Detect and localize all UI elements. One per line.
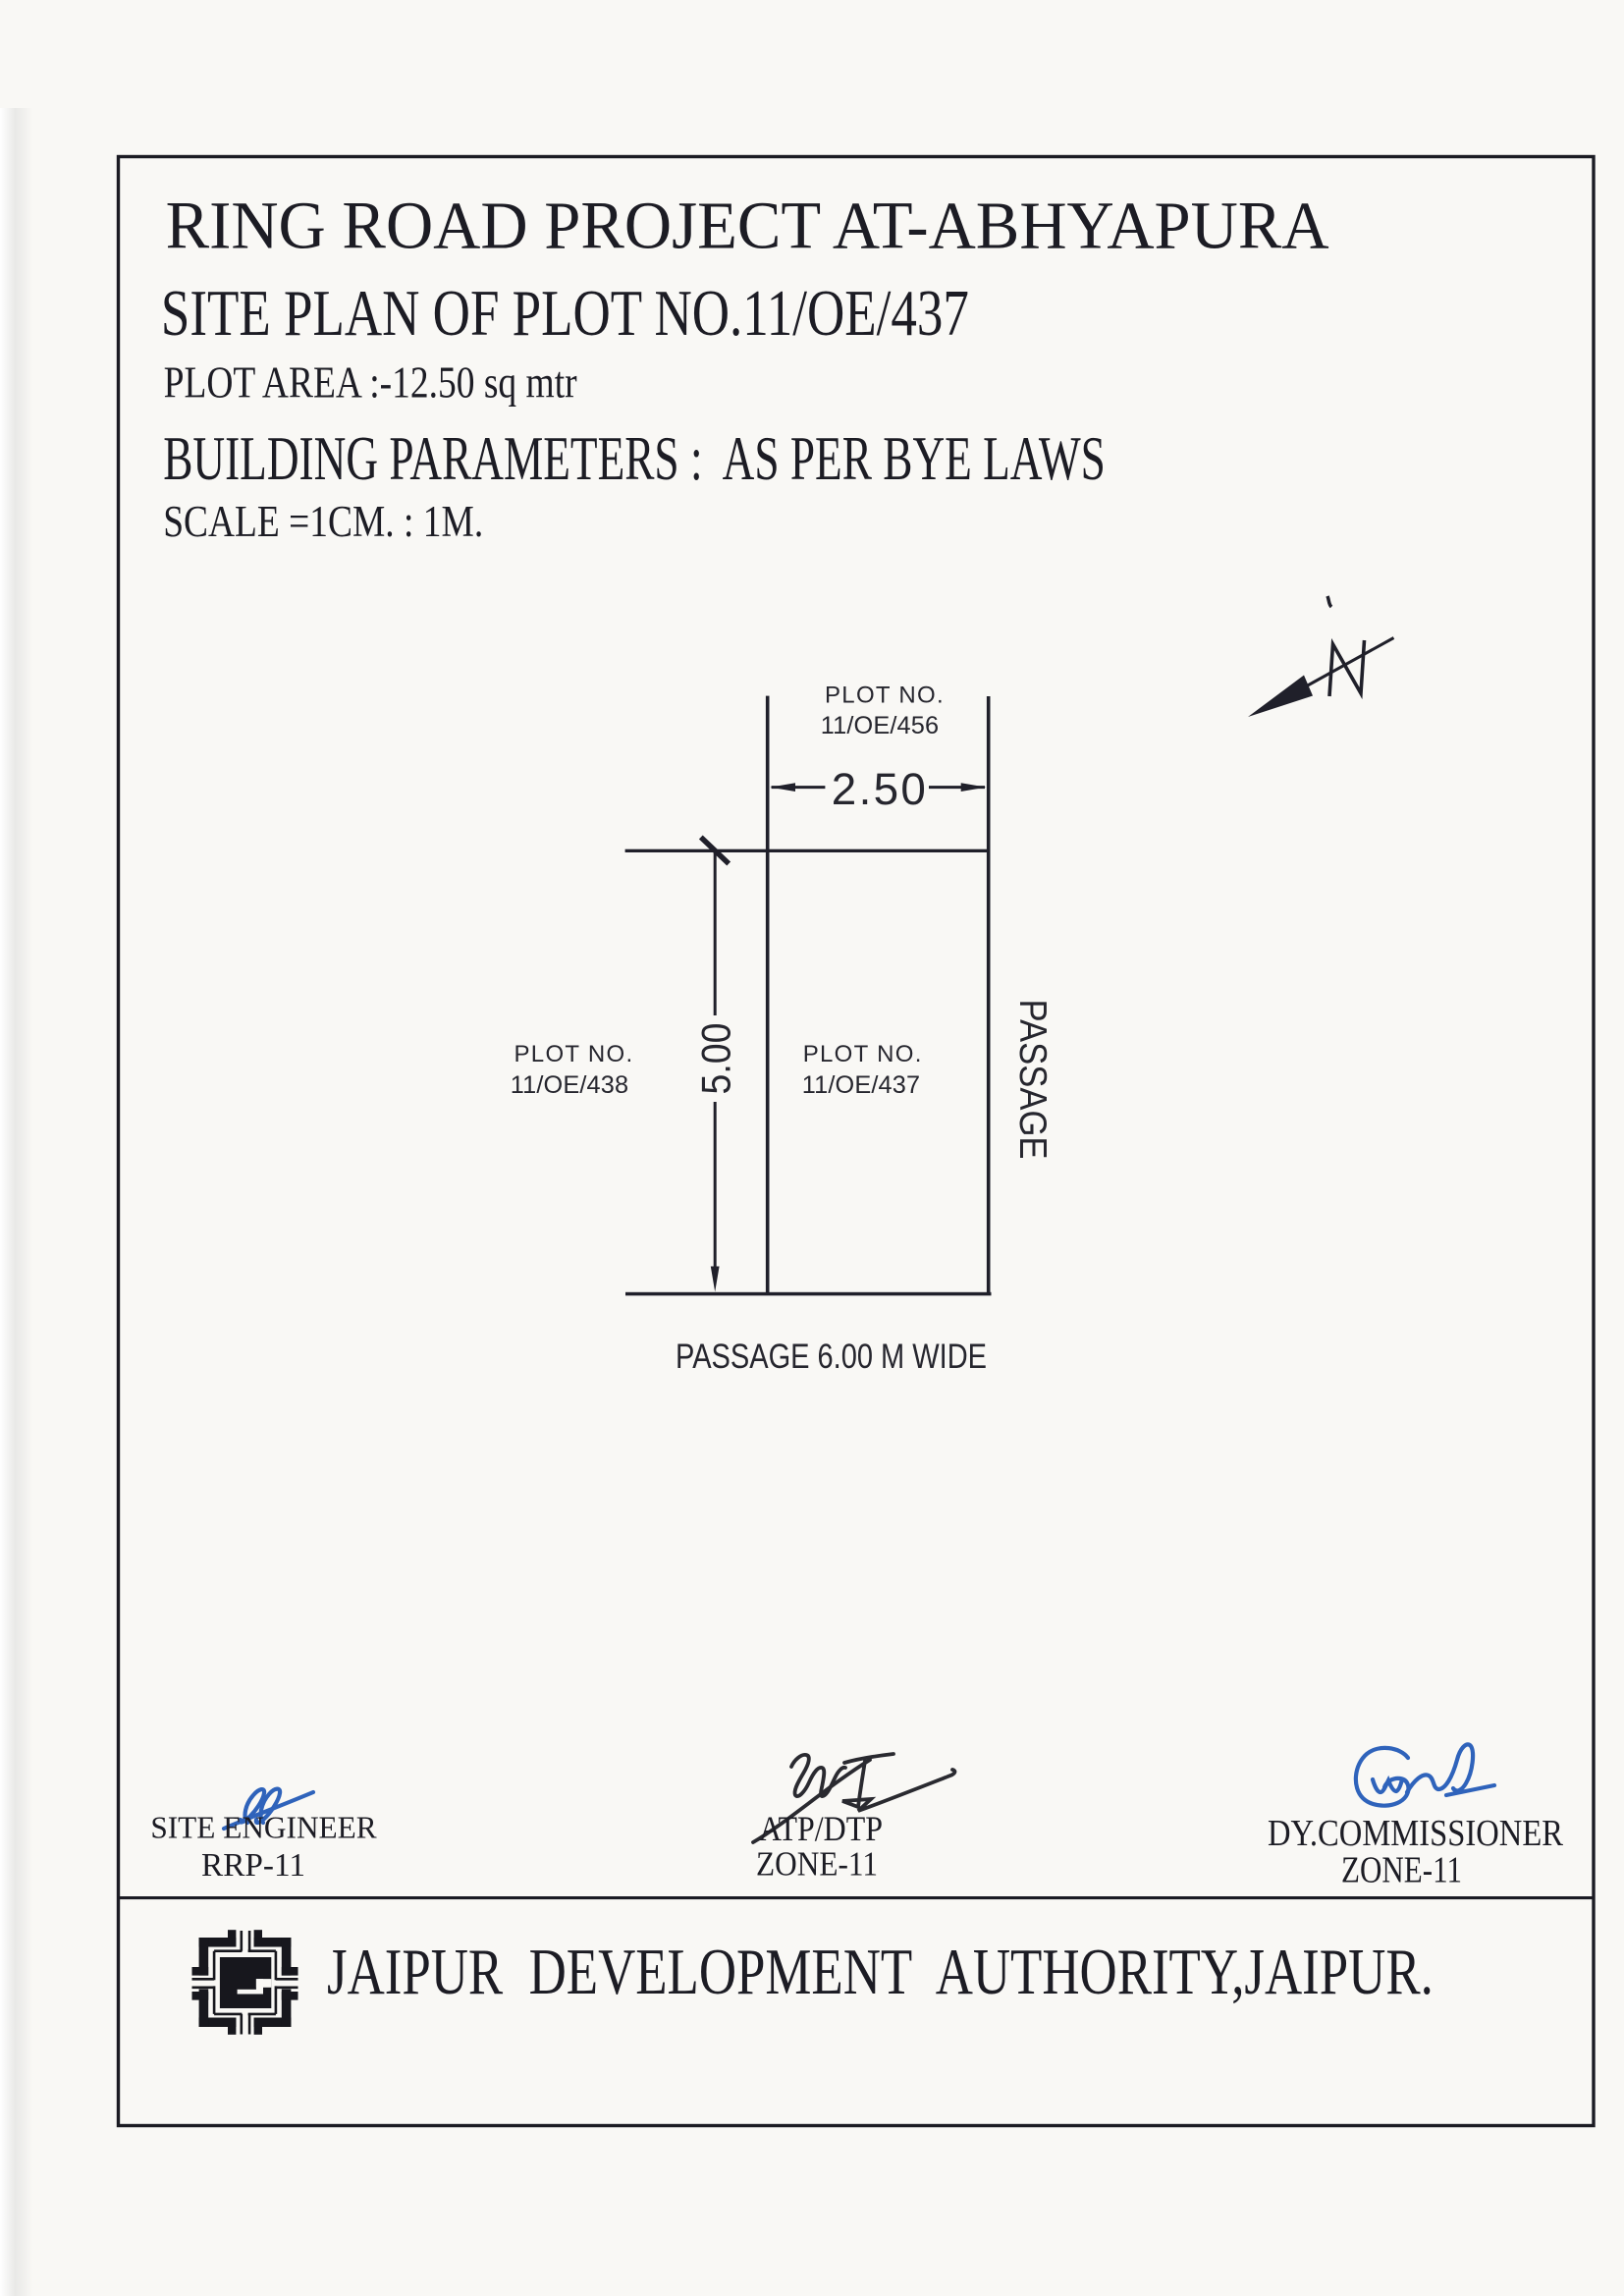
svg-text:ATP/DTP: ATP/DTP [759, 1809, 883, 1848]
svg-text:PASSAGE 6.00 M WIDE: PASSAGE 6.00 M WIDE [676, 1338, 987, 1376]
svg-text:BUILDING PARAMETERS : AS PER: BUILDING PARAMETERS : AS PER BYE LAWS [163, 424, 1106, 493]
svg-text:11/OE/438: 11/OE/438 [511, 1071, 628, 1099]
svg-text:11/OE/437: 11/OE/437 [802, 1071, 920, 1099]
svg-text:PASSAGE: PASSAGE [1011, 1000, 1054, 1160]
svg-text:5.00: 5.00 [692, 1023, 738, 1095]
svg-text:PLOT NO.: PLOT NO. [803, 1041, 923, 1067]
svg-text:RING ROAD PROJECT AT-ABHYAPURA: RING ROAD PROJECT AT-ABHYAPURA [166, 189, 1329, 263]
svg-text:SITE ENGINEER: SITE ENGINEER [150, 1811, 376, 1845]
svg-text:PLOT AREA :-12.50 sq mtr: PLOT AREA :-12.50 sq mtr [164, 357, 577, 408]
svg-text:ZONE-11: ZONE-11 [1341, 1850, 1462, 1891]
svg-text:SCALE =1CM. : 1M.: SCALE =1CM. : 1M. [163, 496, 483, 546]
svg-text:JAIPUR DEVELOPMENT AUTHORITY: JAIPUR DEVELOPMENT AUTHORITY,JAIPUR. [327, 1935, 1434, 2007]
svg-text:ZONE-11: ZONE-11 [756, 1845, 878, 1884]
svg-text:RRP-11: RRP-11 [201, 1846, 305, 1884]
svg-text:SITE PLAN OF PLOT NO.11/OE/437: SITE PLAN OF PLOT NO.11/OE/437 [161, 277, 969, 350]
svg-text:PLOT NO.: PLOT NO. [825, 683, 945, 709]
svg-text:11/OE/456: 11/OE/456 [821, 712, 939, 739]
svg-text:PLOT NO.: PLOT NO. [514, 1041, 634, 1067]
svg-text:DY.COMMISSIONER: DY.COMMISSIONER [1268, 1813, 1564, 1854]
svg-text:2.50: 2.50 [832, 764, 928, 814]
